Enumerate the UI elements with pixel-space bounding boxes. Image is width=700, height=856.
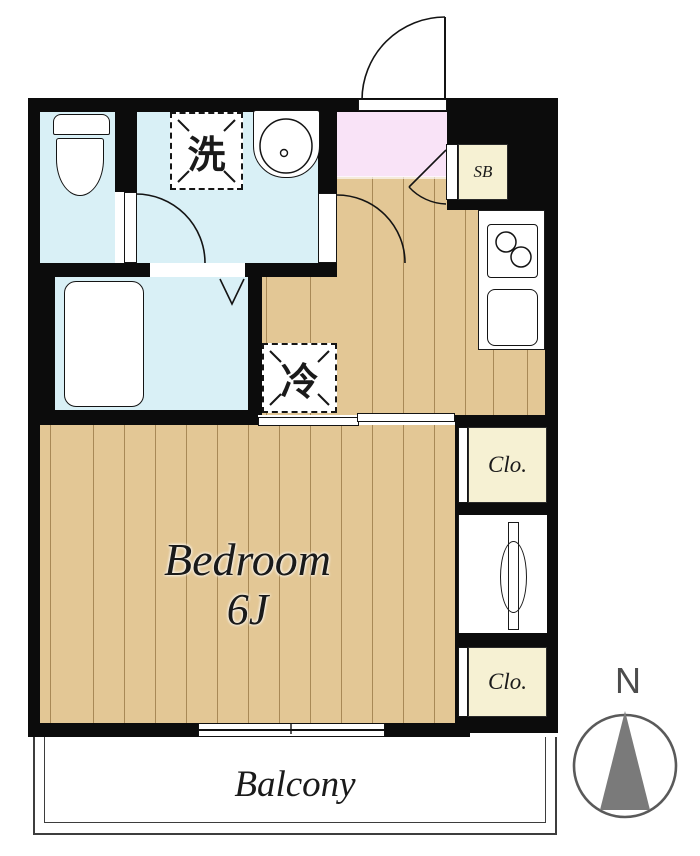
wall-washroom-entrance [318,98,337,193]
bedroom-label: Bedroom 6J [40,528,455,640]
entrance-step-line [337,176,447,179]
bedroom-sliding-door-right [357,413,455,422]
compass-north-label: N [600,660,656,702]
entrance-door-arc [362,17,445,100]
bathroom-sink-unit [253,110,320,178]
hall-floor [337,177,447,208]
closet-lower-door [458,647,468,717]
wall-kitchen-bottom [455,415,558,427]
wall-toilet-washroom [115,98,137,192]
wall-closet-mid-bottom [455,633,558,647]
wall-left-bath [28,263,55,425]
entrance-threshold [358,99,447,111]
balcony-label: Balcony [33,755,557,813]
bedroom-name: Bedroom [164,534,331,586]
shoe-box-door [446,144,458,200]
wall-closet-mid-top [455,503,558,515]
entrance-floor [337,112,447,177]
bedroom-window-glass-line [199,729,384,731]
bedroom-sliding-door-left [258,417,359,426]
closet-upper-door [458,427,468,503]
kitchen-floor-south [480,350,545,415]
compass-needle [600,711,650,810]
bedroom-size: 6J [227,585,269,634]
washing-machine-label: 洗 [170,112,243,190]
wall-washroom-bottom-right [245,263,318,277]
closet-upper-label: Clo. [468,427,547,503]
stove [487,224,538,278]
wall-bedroom-bottom-right [385,723,470,737]
toilet-door-leaf [124,192,137,263]
kitchen-sink [487,289,538,346]
floorplan: 洗 冷 SB Clo. Clo. Balcony Bedroom 6J N [0,0,700,856]
wall-washroom-bottom-left [28,263,150,277]
window-handle-lens [500,541,527,613]
shoe-box-label: SB [458,144,508,200]
wall-bedroom-bottom-left [28,723,198,737]
wall-bathroom-bottom [28,410,258,425]
washroom-door-leaf [318,193,337,263]
refrigerator-label: 冷 [262,343,337,413]
kitchen-floor [337,208,480,415]
wall-bathroom-right [248,277,262,415]
bathtub [64,281,144,407]
toilet-tank [53,114,110,135]
closet-lower-label: Clo. [468,647,547,717]
wall-washroom-entrance-foot [318,263,337,277]
compass-circle [574,715,676,817]
wall-closet-bottom [455,717,558,733]
